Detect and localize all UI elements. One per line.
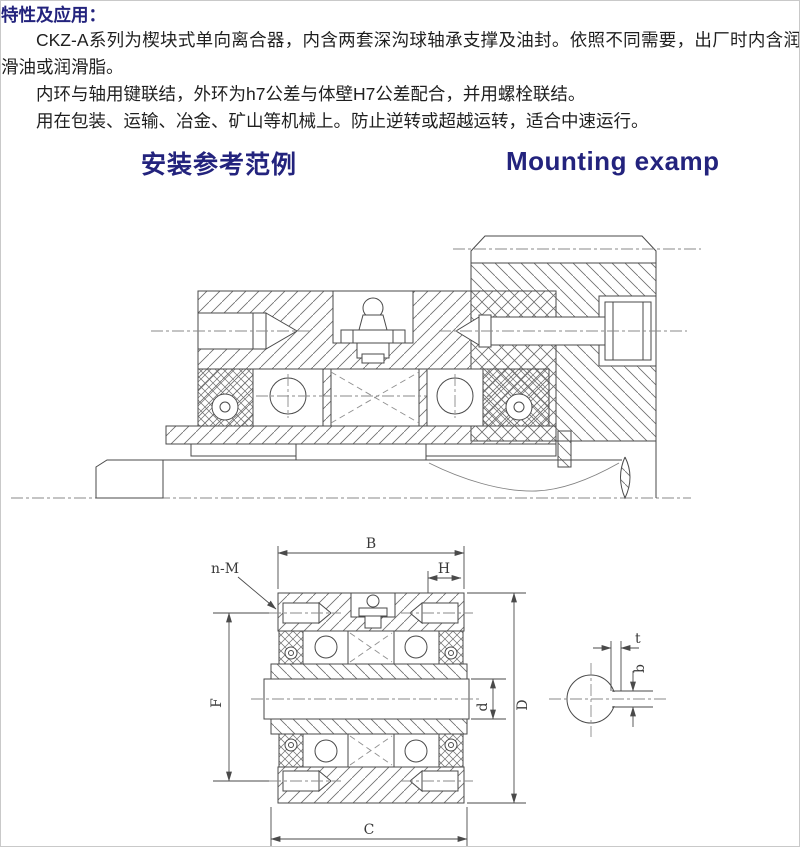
heading-installation-example-zh: 安装参考范例 — [141, 145, 297, 181]
dim-label-D: D — [515, 699, 531, 710]
catalog-page: 特性及应用： CKZ-A系列为楔块式单向离合器，内含两套深沟球轴承支撑及油封。依… — [0, 0, 800, 847]
mounting-example-drawing — [1, 211, 800, 511]
top-bearing-row — [279, 631, 463, 664]
inner-ring-and-shaft — [96, 426, 630, 498]
intro-text-block: 特性及应用： CKZ-A系列为楔块式单向离合器，内含两套深沟球轴承支撑及油封。依… — [1, 3, 800, 135]
dim-label-F: F — [209, 698, 225, 708]
section-title: 特性及应用： — [1, 3, 800, 27]
dimensioned-drawing: B H n-M F d — [1, 531, 800, 847]
keyway-section-figure: t b — [549, 631, 669, 737]
shaft-key — [296, 444, 426, 460]
dim-label-t: t — [635, 631, 641, 647]
dim-label-nM: n-M — [211, 561, 239, 577]
dimension-F: F — [209, 613, 269, 781]
dimension-H: H — [428, 561, 461, 593]
dimension-nM: n-M — [211, 561, 276, 609]
dimension-C: C — [271, 807, 467, 846]
dimension-D: D — [467, 593, 531, 803]
dim-label-C: C — [364, 822, 375, 838]
clutch-section-body — [251, 593, 481, 803]
dim-label-b: b — [632, 664, 648, 673]
bearing-row — [198, 369, 549, 426]
paragraph-fit-description: 内环与轴用键联结，外环为h7公差与体壁H7公差配合，并用螺栓联结。 — [1, 81, 800, 108]
dim-label-H: H — [438, 561, 450, 577]
dimension-B: B — [278, 536, 464, 589]
heading-mounting-example-en: Mounting examp — [506, 146, 720, 177]
dim-label-d: d — [475, 702, 491, 711]
shaft-break-symbol — [621, 457, 631, 498]
bottom-bearing-row — [279, 734, 463, 767]
section-headings-row: 安装参考范例 Mounting examp — [1, 145, 800, 181]
paragraph-series-description: CKZ-A系列为楔块式单向离合器，内含两套深沟球轴承支撑及油封。依照不同需要，出… — [1, 27, 800, 81]
dim-label-B: B — [366, 536, 376, 552]
paragraph-application: 用在包装、运输、冶金、矿山等机械上。防止逆转或超越运转，适合中速运行。 — [1, 108, 800, 135]
